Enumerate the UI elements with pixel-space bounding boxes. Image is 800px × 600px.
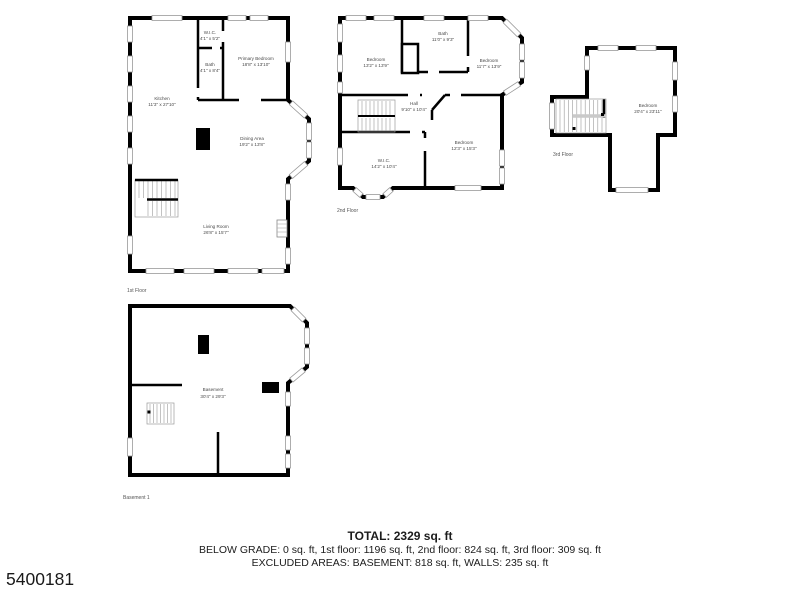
basement-plan: Basement 30'4" x 29'3" Basement 1: [119, 300, 316, 505]
room-dims-bath: 4'1" x 8'4": [200, 68, 220, 73]
second-floor-walls: [340, 18, 522, 197]
room-label-bedroom-bottom: Bedroom: [455, 140, 474, 145]
third-floor-plan: Bedroom 20'4" x 23'11" 3rd Floor: [544, 42, 686, 195]
room-label-wic: W.I.C.: [204, 30, 217, 35]
room-label-primary-bedroom: Primary Bedroom: [238, 56, 274, 61]
room-dims-dining: 19'2" x 13'8": [239, 142, 265, 147]
room-dims-bath2: 11'0" x 9'3": [432, 37, 455, 42]
room-label-dining: Dining Area: [240, 136, 264, 141]
second-floor-caption: 2nd Floor: [337, 208, 358, 214]
first-floor-stairs: [135, 180, 178, 217]
room-dims-bedroom-bottom: 12'3" x 15'3": [451, 146, 477, 151]
room-label-hall: Hall: [410, 101, 418, 106]
room-dims-wic2: 14'2" x 10'4": [371, 164, 397, 169]
room-dims-kitchen: 11'3" x 27'10": [148, 102, 176, 107]
room-label-bath2: Bath: [438, 31, 448, 36]
room-label-living: Living Room: [203, 224, 229, 229]
room-dims-basement: 30'4" x 29'3": [200, 394, 226, 399]
floor-areas-text: BELOW GRADE: 0 sq. ft, 1st floor: 1196 s…: [0, 544, 800, 557]
room-label-kitchen: Kitchen: [154, 96, 170, 101]
room-dims-hall: 9'10" x 10'4": [401, 107, 427, 112]
basement-stairs: [147, 403, 174, 424]
room-dims-primary-bedroom: 18'8" x 13'10": [242, 62, 270, 67]
first-floor-plan: W.I.C. 4'1" x 5'2" Bath 4'1" x 8'4" Prim…: [124, 12, 318, 298]
room-dims-bedroom-left: 13'2" x 13'9": [363, 63, 389, 68]
room-label-basement: Basement: [203, 387, 224, 392]
floor-plan-page: W.I.C. 4'1" x 5'2" Bath 4'1" x 8'4" Prim…: [0, 0, 800, 600]
room-dims-bedroom-right: 11'7" x 13'9": [477, 64, 502, 69]
second-floor-plan: Bedroom 13'2" x 13'9" Bath 11'0" x 9'3" …: [334, 12, 536, 218]
third-floor-walls: [552, 48, 675, 190]
total-area-text: TOTAL: 2329 sq. ft: [0, 529, 800, 544]
room-dims-wic: 4'1" x 5'2": [200, 36, 220, 41]
room-label-bedroom-right: Bedroom: [480, 58, 499, 63]
basement-utility-block: [262, 382, 279, 393]
third-floor-stairs: [556, 99, 606, 133]
second-floor-stairs: [358, 100, 395, 132]
third-floor-room-labels: Bedroom 20'4" x 23'11": [634, 103, 662, 114]
first-floor-caption: 1st Floor: [127, 288, 147, 294]
room-dims-living: 26'8" x 15'7": [203, 230, 229, 235]
third-floor-caption: 3rd Floor: [553, 152, 573, 158]
second-floor-windows: [338, 16, 525, 200]
chimney: [196, 128, 210, 150]
basement-chimney: [198, 335, 209, 354]
basement-caption: Basement 1: [123, 495, 150, 501]
room-dims-bedroom3: 20'4" x 23'11": [634, 109, 662, 114]
fireplace: [277, 220, 287, 237]
room-label-bedroom3: Bedroom: [639, 103, 658, 108]
room-label-bath: Bath: [205, 62, 215, 67]
area-summary: TOTAL: 2329 sq. ft BELOW GRADE: 0 sq. ft…: [0, 529, 800, 570]
first-floor-room-labels: W.I.C. 4'1" x 5'2" Bath 4'1" x 8'4" Prim…: [148, 30, 274, 235]
room-label-wic2: W.I.C.: [378, 158, 391, 163]
basement-room-labels: Basement 30'4" x 29'3": [200, 387, 226, 399]
listing-photo-id: 5400181: [6, 569, 74, 590]
room-label-bedroom-left: Bedroom: [367, 57, 386, 62]
excluded-areas-text: EXCLUDED AREAS: BASEMENT: 818 sq. ft, WA…: [0, 557, 800, 570]
